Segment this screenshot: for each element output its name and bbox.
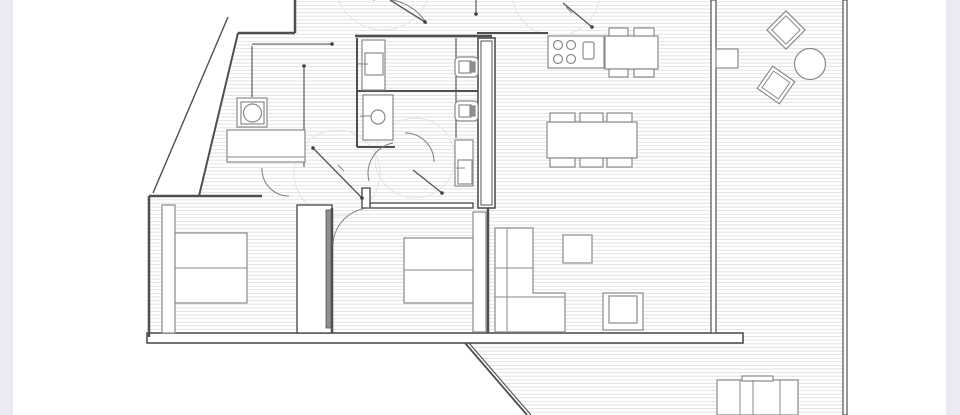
dining-chair-2 (580, 113, 603, 122)
island-chair-3 (609, 69, 628, 77)
armchair-inner (609, 296, 637, 323)
dining-chair-4 (550, 158, 575, 167)
hall-door-leaf-right-hinge-dot-0 (440, 191, 444, 195)
shower-inner (458, 160, 472, 184)
hall-door-leaf-left-hinge-dot-1 (360, 196, 364, 200)
coffee-table (563, 235, 592, 263)
hall-door-leaf-left-hinge-dot-0 (311, 146, 315, 150)
service-shaft-inner (481, 41, 492, 205)
terrace-round-table (795, 49, 826, 80)
washer-drum (244, 104, 262, 122)
toilet-1-tank (470, 62, 475, 72)
terrace-side-table (716, 49, 738, 68)
terrace-right-wall (843, 0, 847, 415)
bed-left-headboard (162, 205, 175, 333)
toilet-2-inner (459, 105, 471, 117)
midbedroom-top-wall (370, 203, 473, 208)
dining-chair-1 (550, 113, 575, 122)
island-chair-1 (609, 28, 628, 36)
sun-lounger (717, 380, 798, 415)
toilet-1-inner (459, 61, 471, 73)
island-chair-4 (634, 69, 654, 77)
toilet-2-tank (470, 106, 475, 116)
dining-chair-3 (607, 113, 632, 122)
kitchen-island (605, 36, 658, 69)
right-page-edge (946, 0, 960, 415)
floor-plan-canvas (0, 0, 960, 415)
kitchen-sink (583, 42, 594, 59)
wall-end-dot-1 (330, 42, 334, 46)
living-terrace-wall (711, 0, 716, 333)
island-chair-2 (634, 28, 654, 36)
burner-4 (567, 55, 576, 64)
burner-3 (554, 55, 563, 64)
left-page-edge (0, 0, 13, 415)
wall-end-dot-3 (474, 12, 478, 16)
bath2-basin (371, 110, 385, 124)
bed-mid-headboard (473, 212, 486, 332)
sun-lounger-headrest (742, 376, 773, 381)
entry-door-leaf-hinge-dot-0 (423, 20, 427, 24)
wall-end-dot-2 (302, 64, 306, 68)
dining-chair-6 (607, 158, 632, 167)
kitchen-door-leaf-hinge-dot-0 (590, 25, 594, 29)
burner-1 (554, 41, 563, 50)
bottom-wall-band (147, 333, 743, 343)
dining-chair-5 (580, 158, 603, 167)
dining-table (547, 122, 637, 158)
burner-2 (567, 41, 576, 50)
apartment-floor-plan (0, 0, 960, 415)
